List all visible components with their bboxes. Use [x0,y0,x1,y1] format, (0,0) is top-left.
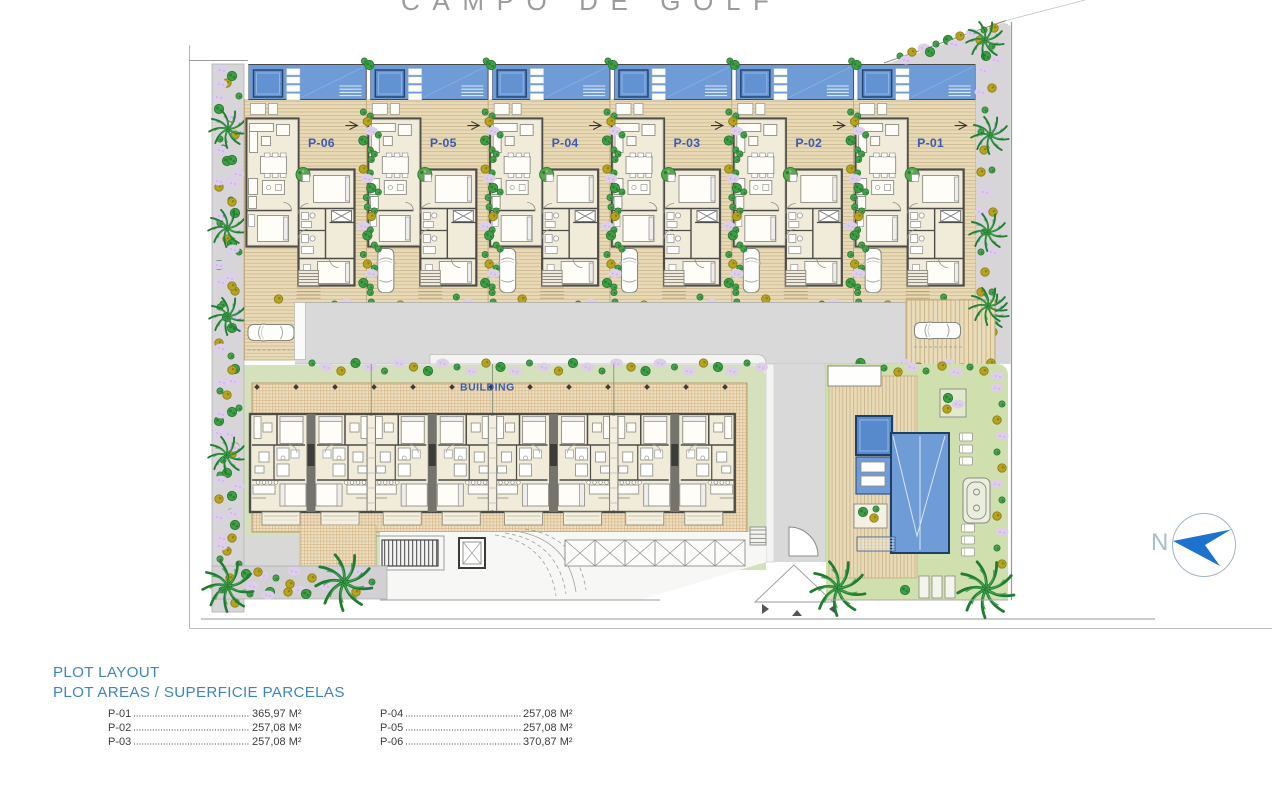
svg-text:P-04: P-04 [380,708,403,720]
svg-text:N: N [1151,529,1168,556]
svg-text:P-06: P-06 [308,136,335,150]
svg-text:257,08 M²: 257,08 M² [523,722,573,734]
svg-text:P-03: P-03 [673,136,700,150]
svg-text:257,08 M²: 257,08 M² [252,736,302,748]
svg-text:P-02: P-02 [108,722,131,734]
svg-text:PLOT AREAS / SUPERFICIE PARCEL: PLOT AREAS / SUPERFICIE PARCELAS [53,684,345,701]
svg-text:257,08 M²: 257,08 M² [252,722,302,734]
svg-text:CAMPO DE GOLF: CAMPO DE GOLF [401,0,782,16]
svg-text:P-06: P-06 [380,736,403,748]
svg-text:P-04: P-04 [552,136,579,150]
svg-text:PLOT LAYOUT: PLOT LAYOUT [53,664,160,681]
svg-text:P-02: P-02 [795,136,822,150]
svg-text:P-03: P-03 [108,736,131,748]
svg-text:370,87 M²: 370,87 M² [523,736,573,748]
svg-text:P-01: P-01 [108,708,131,720]
svg-text:365,97 M²: 365,97 M² [252,708,302,720]
svg-text:P-05: P-05 [380,722,403,734]
svg-text:BUILDING: BUILDING [460,382,515,394]
svg-text:P-01: P-01 [917,136,944,150]
svg-text:P-05: P-05 [430,136,457,150]
svg-text:257,08 M²: 257,08 M² [523,708,573,720]
